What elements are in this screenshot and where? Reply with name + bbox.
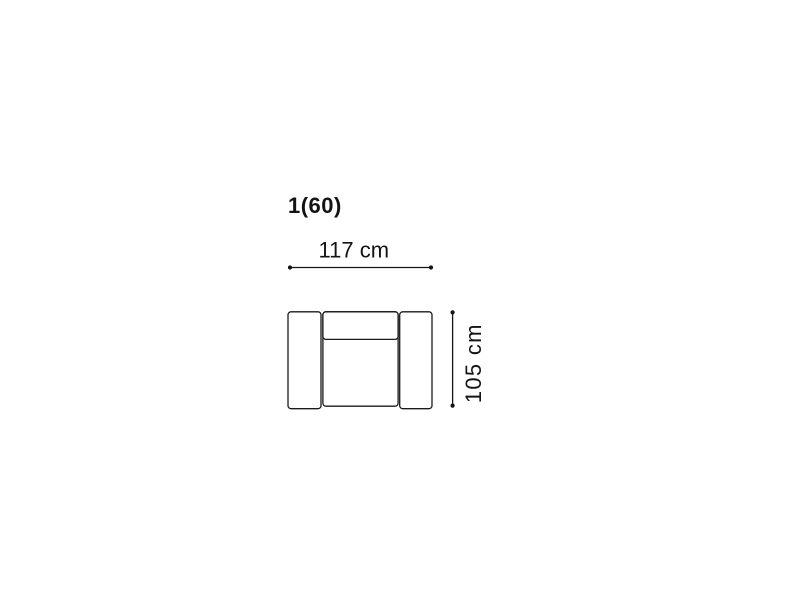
svg-text:1(60): 1(60) (288, 193, 342, 218)
svg-text:105 cm: 105 cm (461, 323, 486, 403)
svg-text:117 cm: 117 cm (319, 238, 390, 263)
